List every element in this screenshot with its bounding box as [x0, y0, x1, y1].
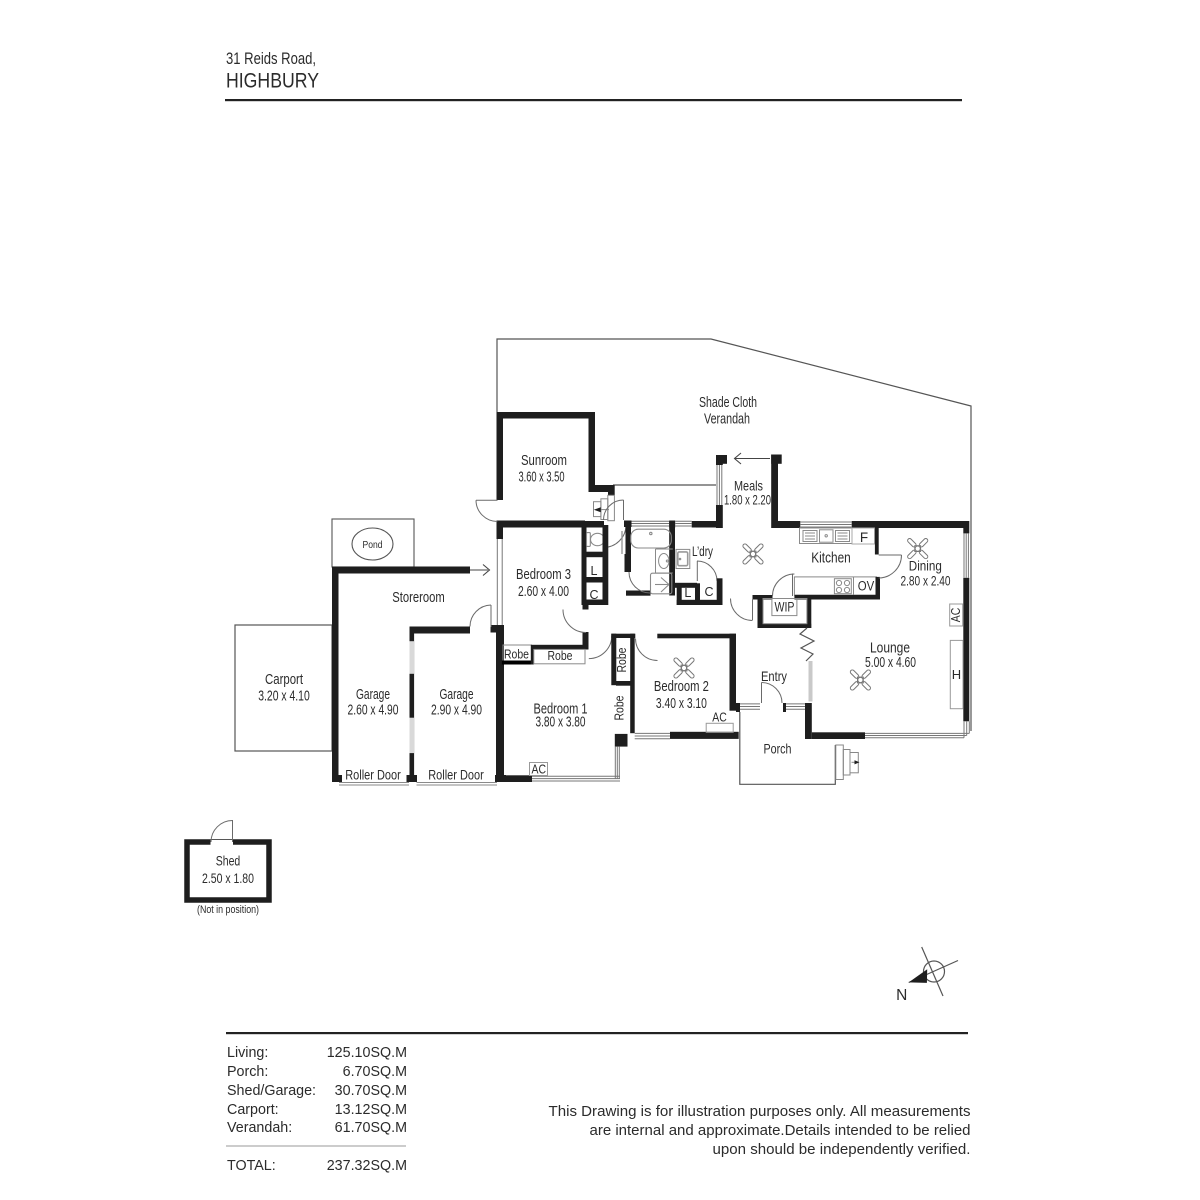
svg-text:61.70SQ.M: 61.70SQ.M — [335, 1120, 407, 1136]
svg-text:HIGHBURY: HIGHBURY — [226, 69, 319, 93]
svg-text:Pond: Pond — [363, 539, 383, 551]
svg-text:Garage: Garage — [440, 687, 474, 703]
svg-text:Sunroom: Sunroom — [521, 452, 567, 469]
svg-text:3.60 x 3.50: 3.60 x 3.50 — [519, 469, 565, 486]
svg-text:upon should be independently v: upon should be independently verified. — [713, 1141, 971, 1158]
svg-text:Dining: Dining — [909, 559, 942, 574]
svg-text:30.70SQ.M: 30.70SQ.M — [335, 1083, 407, 1099]
svg-text:Verandah:: Verandah: — [227, 1120, 292, 1136]
svg-text:C: C — [704, 585, 713, 599]
svg-text:AC: AC — [712, 711, 727, 725]
svg-text:Verandah: Verandah — [704, 411, 750, 428]
svg-text:AC: AC — [949, 608, 963, 623]
svg-text:TOTAL:: TOTAL: — [227, 1158, 276, 1174]
svg-text:Porch:: Porch: — [227, 1064, 268, 1080]
svg-text:Shade Cloth: Shade Cloth — [699, 394, 757, 411]
svg-text:This Drawing is for illustrati: This Drawing is for illustration purpose… — [549, 1103, 971, 1120]
svg-text:Bedroom 2: Bedroom 2 — [654, 679, 709, 695]
svg-text:2.60 x 4.00: 2.60 x 4.00 — [518, 584, 569, 600]
svg-text:Carport: Carport — [265, 671, 304, 688]
svg-text:Carport:: Carport: — [227, 1102, 279, 1118]
svg-text:31 Reids Road,: 31 Reids Road, — [226, 49, 316, 68]
svg-text:N: N — [896, 987, 907, 1004]
svg-text:OV: OV — [858, 579, 875, 594]
svg-text:Bedroom 3: Bedroom 3 — [516, 567, 571, 583]
svg-text:Living:: Living: — [227, 1045, 268, 1061]
svg-text:L: L — [684, 586, 691, 600]
svg-text:13.12SQ.M: 13.12SQ.M — [335, 1102, 407, 1118]
svg-text:5.00 x 4.60: 5.00 x 4.60 — [865, 655, 916, 671]
svg-text:Shed: Shed — [216, 854, 241, 869]
svg-text:Robe: Robe — [548, 648, 573, 663]
svg-text:2.80 x 2.40: 2.80 x 2.40 — [901, 574, 951, 589]
svg-text:AC: AC — [532, 763, 547, 777]
svg-text:3.80 x 3.80: 3.80 x 3.80 — [536, 715, 586, 731]
svg-text:Robe: Robe — [614, 648, 629, 673]
svg-text:2.90 x 4.90: 2.90 x 4.90 — [431, 703, 482, 719]
svg-text:Robe: Robe — [504, 647, 529, 662]
svg-text:3.20 x 4.10: 3.20 x 4.10 — [258, 688, 310, 705]
svg-text:WIP: WIP — [775, 600, 795, 615]
svg-text:Robe: Robe — [612, 696, 627, 721]
svg-text:L’dry: L’dry — [692, 544, 713, 559]
svg-text:H: H — [952, 667, 961, 682]
svg-text:Garage: Garage — [356, 687, 390, 703]
svg-text:(Not in position): (Not in position) — [197, 904, 259, 916]
svg-text:125.10SQ.M: 125.10SQ.M — [327, 1045, 407, 1061]
svg-text:237.32SQ.M: 237.32SQ.M — [327, 1158, 407, 1174]
svg-text:Roller Door: Roller Door — [345, 768, 401, 783]
svg-text:C: C — [589, 588, 598, 602]
svg-text:3.40 x 3.10: 3.40 x 3.10 — [656, 696, 707, 712]
svg-text:L: L — [591, 564, 598, 578]
svg-text:Kitchen: Kitchen — [811, 551, 851, 567]
svg-text:F: F — [860, 530, 868, 545]
svg-text:2.50 x 1.80: 2.50 x 1.80 — [202, 871, 254, 886]
svg-text:Roller Door: Roller Door — [428, 768, 484, 783]
svg-text:2.60 x 4.90: 2.60 x 4.90 — [348, 703, 399, 719]
svg-text:Shed/Garage:: Shed/Garage: — [227, 1083, 316, 1099]
svg-text:Storeroom: Storeroom — [392, 590, 445, 606]
svg-text:Porch: Porch — [764, 741, 792, 757]
svg-text:6.70SQ.M: 6.70SQ.M — [343, 1064, 407, 1080]
svg-text:Entry: Entry — [761, 668, 787, 684]
svg-text:are internal and approximate.D: are internal and approximate.Details int… — [590, 1122, 971, 1139]
svg-text:1.80 x 2.20: 1.80 x 2.20 — [724, 492, 771, 508]
